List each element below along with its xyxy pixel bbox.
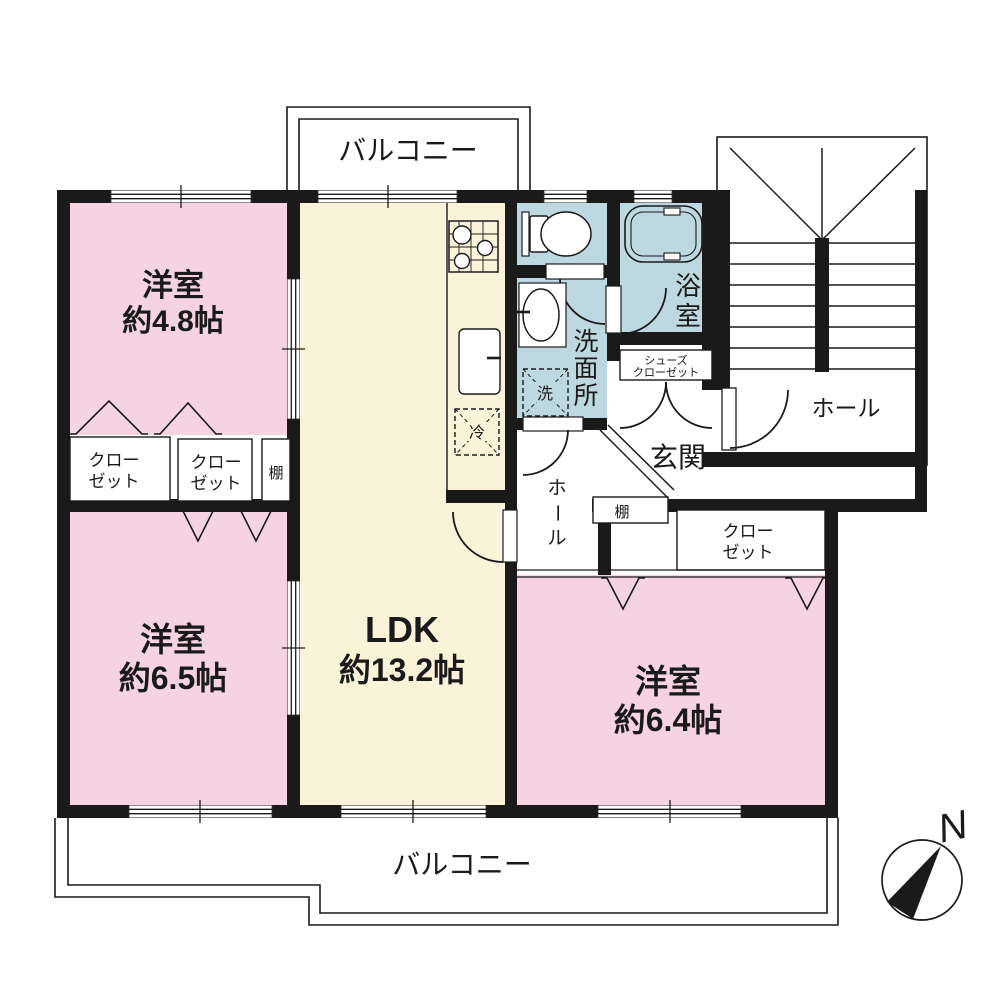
label-shoes-closet-line2: クローゼット [633, 366, 699, 379]
compass-needle-icon [887, 846, 941, 919]
label-shoes-closet-line1: シューズ [644, 353, 687, 367]
room-fill-ldk [300, 203, 505, 805]
label-ldk-name: LDK [365, 609, 439, 650]
wall-stair-divider [815, 238, 829, 372]
label-hall-inner-char-2: ル [547, 528, 566, 549]
ldk-door-leaf [503, 510, 517, 562]
wall-stairhall-bottom [717, 452, 927, 467]
label-washroom-char-0: 洗 [573, 328, 598, 356]
label-shelf-a: 棚 [268, 465, 283, 482]
compass: N [882, 802, 972, 920]
label-closet-c-line1: クロー [723, 522, 774, 541]
label-bath-char-0: 浴 [675, 271, 701, 301]
wall-mid-right [505, 203, 517, 805]
window-toilet-top [543, 191, 588, 203]
label-yoshitsu-64-name: 洋室 [635, 663, 701, 700]
shelf-b-box [593, 497, 668, 523]
label-closet-b-line2: ゼット [191, 474, 242, 493]
wall-right-lower [825, 499, 838, 818]
label-hall-inner-char-1: ー [546, 503, 567, 522]
label-washroom-char-1: 面 [573, 355, 598, 383]
label-ldk-size: 約13.2帖 [339, 652, 465, 688]
label-shelf-b: 棚 [614, 504, 629, 521]
floorplan-drawing: N 洋室 約4.8帖 洋室 約6.5帖 洋室 約6.4帖 LDK 約13.2帖 … [0, 0, 1000, 1000]
label-balcony-north: バルコニー [338, 135, 477, 166]
basin-icon [516, 283, 566, 347]
label-yoshitsu-65-name: 洋室 [140, 621, 206, 658]
wall-hall-stub [598, 523, 611, 575]
label-closet-b-line1: クロー [191, 453, 242, 472]
label-hall-stairs: ホール [812, 395, 881, 421]
wall-kitchen-stub [446, 490, 505, 503]
label-balcony-south: バルコニー [392, 849, 531, 880]
front-door-arc [730, 390, 788, 448]
label-washroom-char-2: 所 [573, 382, 598, 410]
wall-bath-stub [607, 345, 620, 361]
label-entrance: 玄関 [650, 442, 706, 473]
kitchen-sink-icon [459, 329, 501, 394]
label-closet-a-line2: ゼット [89, 472, 140, 491]
floorplan-canvas: N 洋室 約4.8帖 洋室 約6.5帖 洋室 約6.4帖 LDK 約13.2帖 … [0, 0, 1000, 1000]
washroom-door-arc [523, 430, 568, 475]
label-washing-machine: 洗 [537, 385, 553, 403]
label-bath-char-1: 室 [675, 301, 701, 331]
label-yoshitsu-48-size: 約4.8帖 [122, 305, 224, 338]
label-yoshitsu-64-size: 約6.4帖 [614, 702, 723, 738]
toilet-door-leaf [546, 264, 604, 279]
label-refrigerator: 冷 [469, 424, 485, 442]
window-bath-top [633, 191, 673, 203]
stair-landing-lines [730, 148, 915, 240]
room-fill-yoshitsu-65 [70, 512, 287, 805]
toilet-icon [522, 212, 591, 256]
label-closet-a-line1: クロー [89, 451, 140, 470]
wall-bath-bottom [620, 332, 715, 345]
label-closet-c-line2: ゼット [723, 543, 774, 562]
washroom-door-leaf [523, 417, 583, 431]
entrance-closet-arc-left [620, 382, 666, 428]
front-door-leaf [722, 388, 736, 450]
bath-door-leaf [606, 286, 621, 333]
label-hall-inner-char-0: ホ [547, 478, 566, 499]
label-yoshitsu-65-size: 約6.5帖 [119, 660, 228, 696]
label-yoshitsu-48-name: 洋室 [142, 268, 204, 303]
wall-stair-right [915, 190, 927, 512]
